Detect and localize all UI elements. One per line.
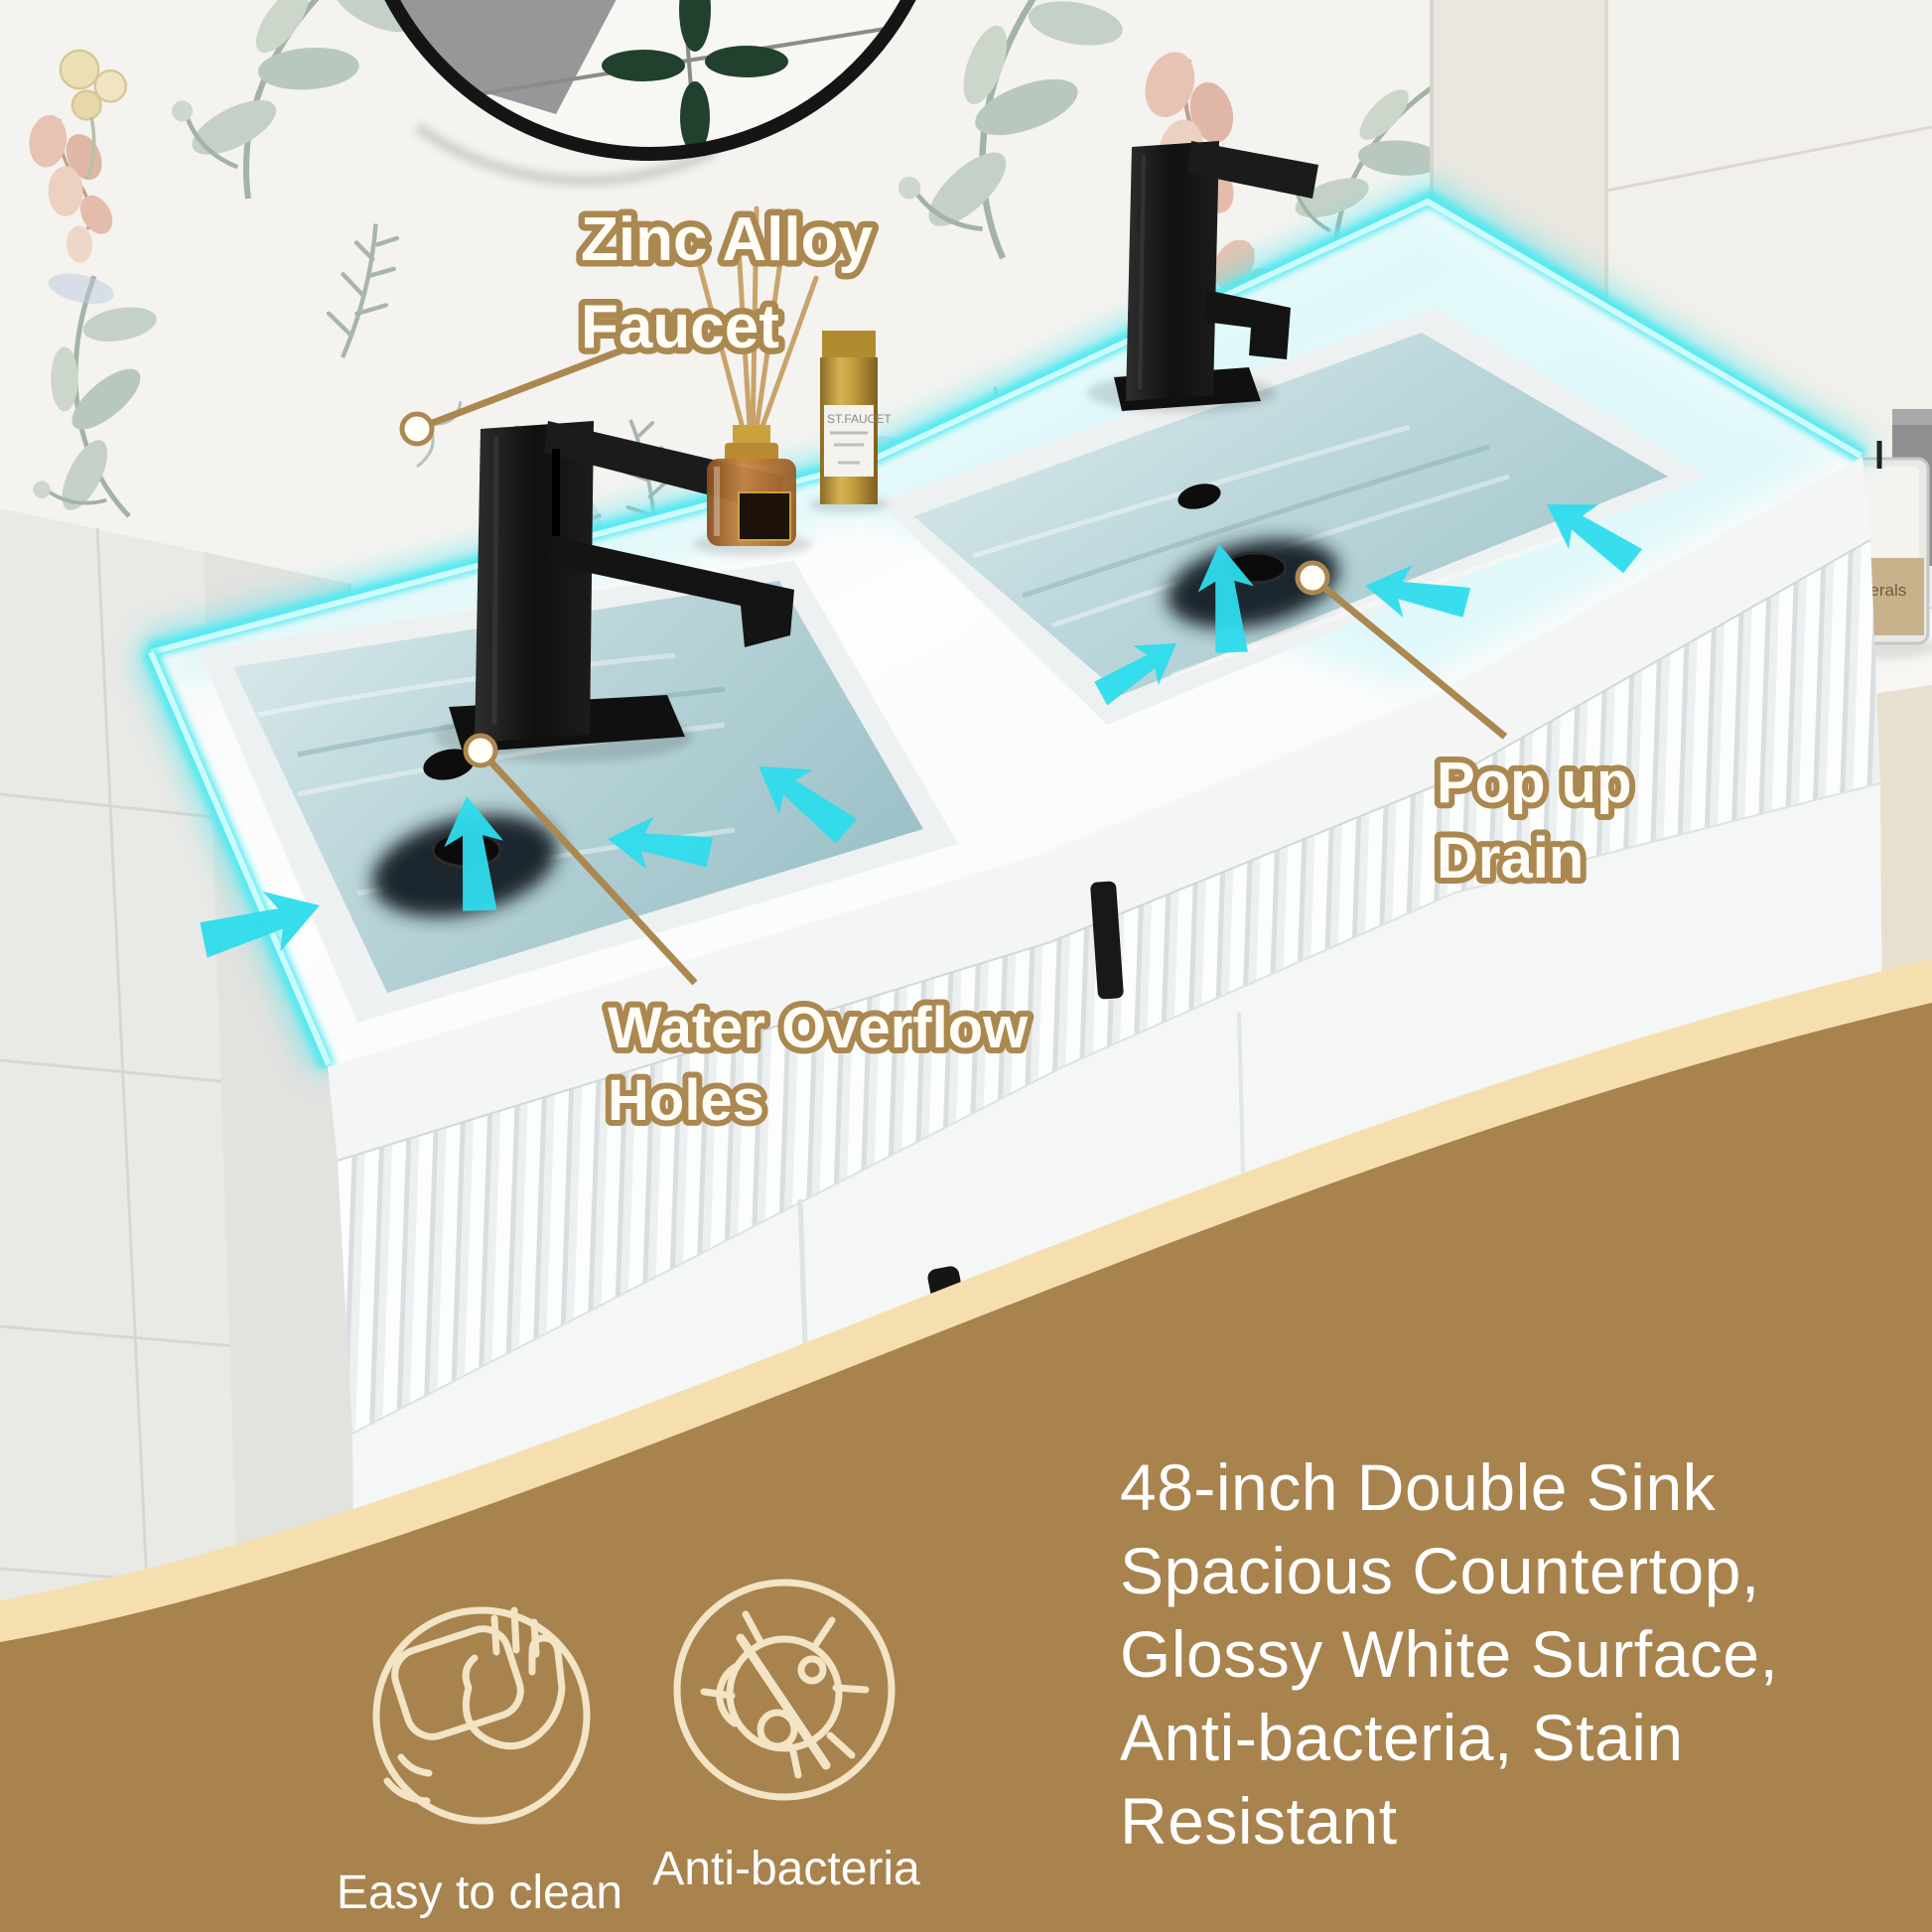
feature-label-easy-to-clean: Easy to clean (337, 1866, 622, 1919)
callout-overflow-line2: Holes (608, 1068, 764, 1133)
callout-drain-line1: Pop up (1437, 751, 1632, 815)
feature-label-anti-bacteria: Anti-bacteria (652, 1843, 920, 1895)
callout-faucet-line1: Zinc Alloy (581, 206, 873, 274)
product-image: minerals (0, 0, 1932, 1932)
perfume-label: ST.FAUCET (827, 412, 892, 426)
callout-dot-overflow (466, 736, 495, 765)
callout-dot-faucet (402, 414, 432, 444)
callout-overflow-line1: Water Overflow (608, 996, 1029, 1060)
callout-drain-line2: Drain (1437, 826, 1584, 891)
product-description: 48-inch Double Sink Spacious Countertop,… (1120, 1446, 1882, 1863)
callout-faucet-line2: Faucet (581, 293, 779, 361)
callout-dot-drain (1298, 563, 1327, 593)
